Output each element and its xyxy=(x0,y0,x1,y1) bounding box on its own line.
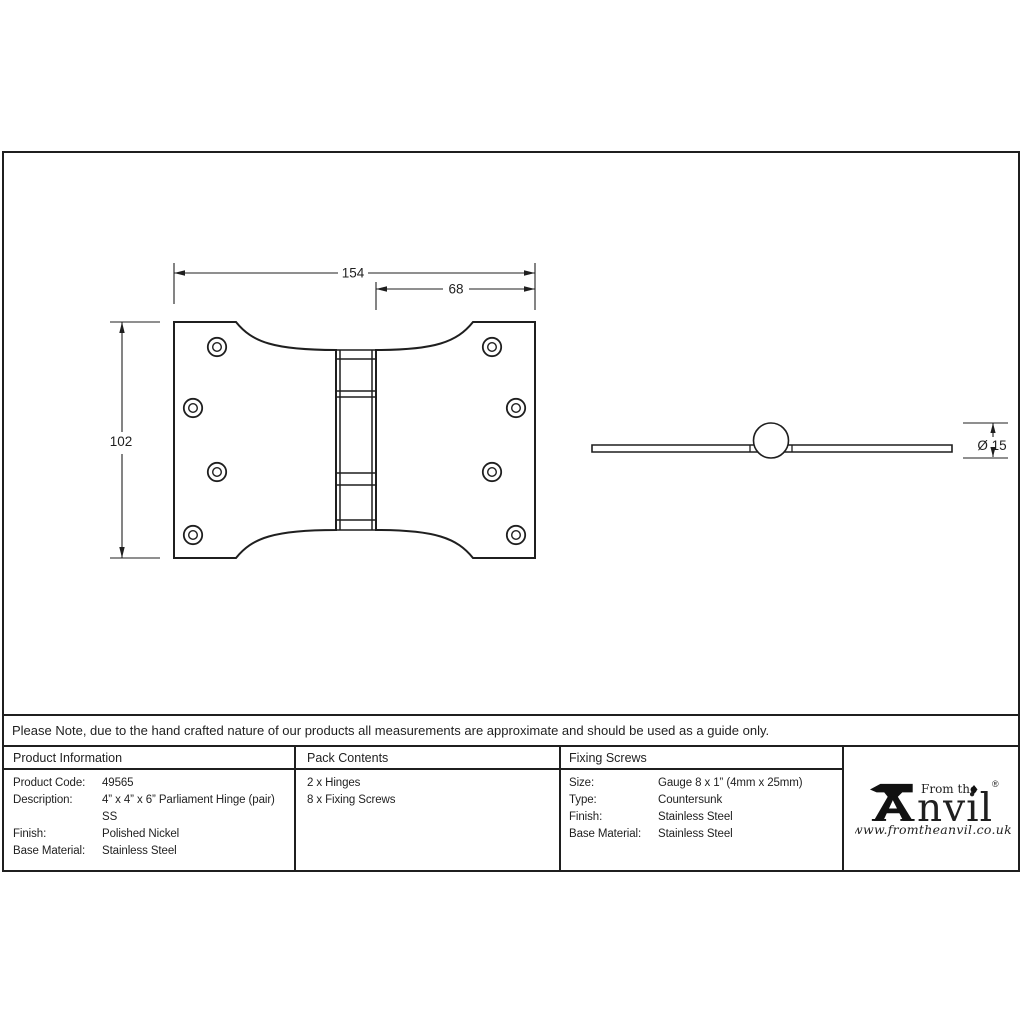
disclaimer-note: Please Note, due to the hand crafted nat… xyxy=(12,723,769,738)
screw-size-value: Gauge 8 x 1” (4mm x 25mm) xyxy=(658,777,803,789)
screw-finish-label: Finish: xyxy=(569,811,602,823)
screw-holes xyxy=(184,338,525,544)
finish-label: Finish: xyxy=(13,828,46,840)
technical-drawing: 154 68 102 Ø 15 xyxy=(0,150,1024,716)
screw-type-value: Countersunk xyxy=(658,794,722,806)
screw-base-material-value: Stainless Steel xyxy=(658,828,733,840)
left-leaf xyxy=(174,322,336,558)
product-info-header: Product Information xyxy=(13,751,122,765)
product-code-label: Product Code: xyxy=(13,777,85,789)
dim-label-height: 102 xyxy=(110,434,133,449)
right-leaf xyxy=(376,322,535,558)
screw-finish-value: Stainless Steel xyxy=(658,811,733,823)
dim-label-offset: 68 xyxy=(448,282,463,297)
side-view xyxy=(592,423,952,458)
brand-tagline: From the xyxy=(921,782,977,796)
anvil-icon xyxy=(870,784,915,821)
registered-trademark: ® xyxy=(992,779,999,789)
column-divider-3 xyxy=(842,745,844,870)
note-bar-top-rule xyxy=(2,714,1018,716)
dimension-arrows xyxy=(119,270,995,558)
side-knuckle-circle xyxy=(754,423,789,458)
dim-label-diameter: Ø 15 xyxy=(977,438,1006,453)
brand-website: www.fromtheanvil.co.uk xyxy=(855,822,1012,837)
from-the-anvil-logo: nvil From the ® www.fromtheanvil.co.uk xyxy=(855,776,1015,838)
pack-item-screws: 8 x Fixing Screws xyxy=(307,794,395,806)
fixing-screws-header: Fixing Screws xyxy=(569,751,647,765)
product-code-value: 49565 xyxy=(102,777,133,789)
screw-type-label: Type: xyxy=(569,794,597,806)
column-divider-2 xyxy=(559,745,561,870)
spec-sheet: 154 68 102 Ø 15 Please Note, due to the … xyxy=(0,0,1024,1024)
screw-base-material-label: Base Material: xyxy=(569,828,641,840)
finish-value: Polished Nickel xyxy=(102,828,179,840)
description-value-line2: SS xyxy=(102,811,117,823)
base-material-label: Base Material: xyxy=(13,845,85,857)
description-label: Description: xyxy=(13,794,73,806)
dimension-lines xyxy=(110,263,1008,558)
pack-item-hinges: 2 x Hinges xyxy=(307,777,360,789)
front-view xyxy=(174,322,535,558)
base-material-value: Stainless Steel xyxy=(102,845,177,857)
table-top-rule xyxy=(2,745,1018,747)
hinge-barrel xyxy=(336,350,376,530)
pack-contents-header: Pack Contents xyxy=(307,751,388,765)
dim-label-width: 154 xyxy=(342,266,365,281)
description-value-line1: 4” x 4” x 6” Parliament Hinge (pair) xyxy=(102,794,275,806)
screw-size-label: Size: xyxy=(569,777,594,789)
column-divider-1 xyxy=(294,745,296,870)
header-underline xyxy=(2,768,844,770)
